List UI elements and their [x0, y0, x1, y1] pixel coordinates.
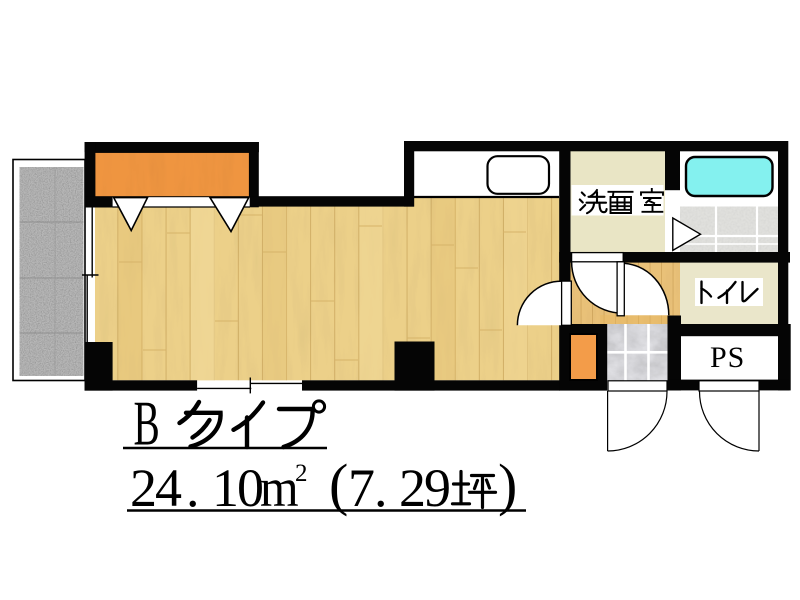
svg-text:29: 29 — [399, 458, 449, 518]
svg-text:24: 24 — [130, 458, 182, 518]
svg-text:(: ( — [329, 452, 348, 517]
svg-text:2: 2 — [295, 460, 308, 487]
svg-text:10: 10 — [212, 458, 262, 518]
svg-text:.: . — [186, 458, 200, 518]
svg-text:PS: PS — [710, 341, 745, 374]
svg-text:): ) — [498, 452, 517, 517]
svg-text:7: 7 — [348, 458, 375, 518]
svg-text:.: . — [374, 458, 388, 518]
